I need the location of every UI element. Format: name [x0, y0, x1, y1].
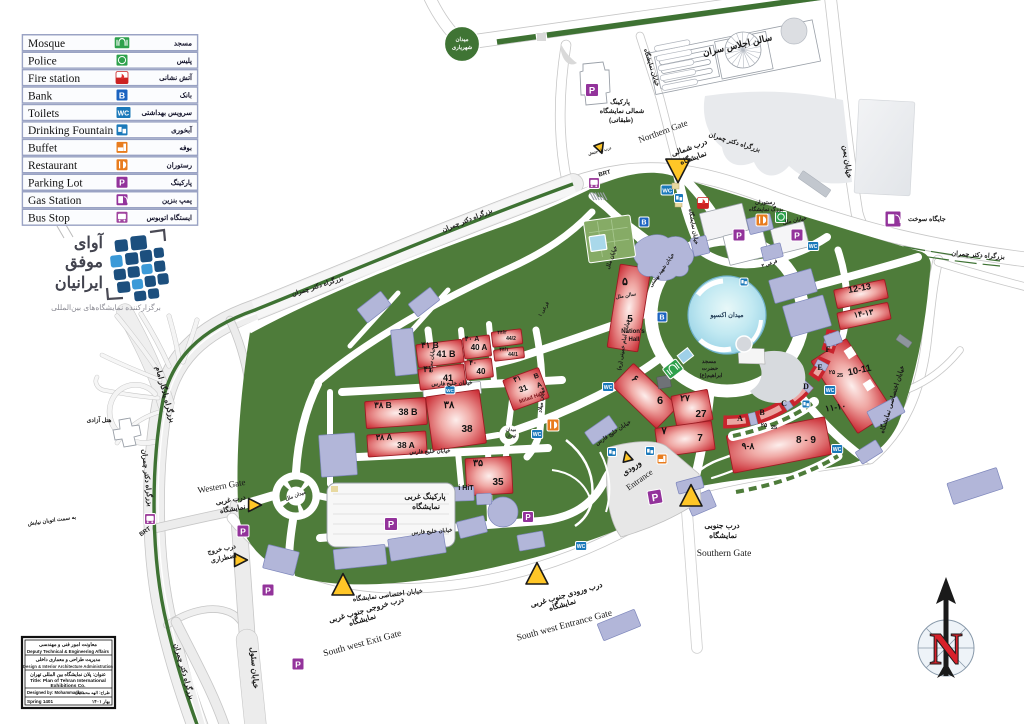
svg-text:WC: WC	[533, 432, 542, 438]
svg-text:سرویس بهداشتی: سرویس بهداشتی	[141, 109, 192, 117]
svg-text:C: C	[781, 399, 787, 408]
svg-text:مسجد: مسجد	[702, 359, 716, 365]
svg-text:P: P	[525, 513, 530, 522]
svg-text:نمایشگاه: نمایشگاه	[709, 530, 737, 540]
svg-text:35: 35	[492, 477, 504, 488]
svg-text:۹-۸: ۹-۸	[742, 441, 755, 451]
svg-text:F: F	[826, 345, 831, 354]
svg-text:P: P	[589, 85, 595, 96]
svg-text:WC: WC	[809, 244, 818, 250]
svg-text:25: 25	[771, 425, 777, 431]
svg-text:بانک: بانک	[180, 92, 192, 100]
svg-text:پارکینگ غربی: پارکینگ غربی	[404, 491, 446, 502]
svg-text:WC: WC	[604, 385, 613, 391]
svg-text:خیابان خلیج فارس: خیابان خلیج فارس	[409, 447, 451, 455]
svg-text:P: P	[388, 519, 394, 530]
svg-text:P: P	[295, 659, 301, 669]
svg-text:۲۷: ۲۷	[680, 393, 690, 403]
svg-text:WC: WC	[833, 447, 842, 453]
svg-text:Bank: Bank	[28, 90, 53, 102]
svg-text:WC: WC	[577, 544, 586, 550]
svg-text:N: N	[929, 623, 962, 674]
svg-text:برگزارکننده نمایشگاه‌های بین‌ا: برگزارکننده نمایشگاه‌های بین‌المللی	[51, 302, 161, 312]
svg-text:۲۵: ۲۵	[761, 423, 768, 429]
svg-text:i HiT: i HiT	[458, 485, 474, 492]
svg-text:Mosque: Mosque	[28, 38, 65, 50]
svg-text:7: 7	[697, 433, 703, 444]
svg-text:WC: WC	[446, 388, 454, 393]
svg-text:27: 27	[695, 409, 707, 420]
svg-text:ابراهیم(ع): ابراهیم(ع)	[700, 372, 723, 379]
svg-text:Hall: Hall	[628, 337, 639, 343]
svg-text:Restaurant: Restaurant	[28, 160, 78, 172]
svg-text:مسجد: مسجد	[174, 40, 192, 47]
svg-text:D: D	[803, 382, 809, 391]
svg-text:38 A: 38 A	[397, 440, 415, 450]
svg-text:Police: Police	[28, 56, 57, 68]
svg-text:38 B: 38 B	[398, 407, 418, 417]
svg-text:آوای: آوای	[74, 231, 105, 253]
svg-text:38: 38	[461, 424, 473, 435]
svg-text:۴۰: ۴۰	[469, 360, 477, 367]
svg-text:پلیس: پلیس	[177, 57, 192, 66]
svg-text:Gas Station: Gas Station	[28, 195, 82, 207]
svg-text:میدان اکسپو: میدان اکسپو	[709, 311, 744, 319]
svg-text:6: 6	[657, 395, 663, 407]
svg-text:Exhibitions Co.: Exhibitions Co.	[51, 683, 86, 689]
svg-text:8 - 9: 8 - 9	[796, 435, 816, 446]
svg-text:Southern Gate: Southern Gate	[697, 549, 752, 559]
svg-text:P: P	[736, 230, 742, 240]
svg-text:(طبقاتی): (طبقاتی)	[609, 116, 633, 124]
svg-text:پارکینگ: پارکینگ	[171, 178, 192, 188]
svg-text:نمایشگاه: نمایشگاه	[412, 501, 440, 511]
svg-text:۳۵: ۳۵	[473, 458, 484, 469]
svg-text:پارکینگ: پارکینگ	[610, 97, 630, 106]
svg-text:موفق: موفق	[65, 254, 103, 272]
svg-text:رستوران: رستوران	[755, 199, 775, 206]
svg-text:Bus Stop: Bus Stop	[28, 213, 70, 225]
svg-text:Fire station: Fire station	[28, 73, 80, 85]
svg-text:Design & Interior Architecture: Design & Interior Architecture Administr…	[23, 664, 113, 669]
svg-text:25: 25	[837, 373, 843, 379]
svg-text:معاونت امور فنی و مهندسی: معاونت امور فنی و مهندسی	[39, 642, 97, 648]
svg-text:شهریاری: شهریاری	[452, 44, 473, 51]
svg-text:Nation's: Nation's	[621, 329, 645, 335]
svg-text:Drinking Fountain: Drinking Fountain	[28, 125, 114, 137]
svg-text:WC: WC	[662, 188, 672, 194]
svg-text:میدان: میدان	[455, 36, 468, 43]
svg-text:WC: WC	[118, 110, 130, 117]
svg-text:Buffet: Buffet	[28, 143, 58, 155]
svg-text:۲۵: ۲۵	[829, 370, 836, 376]
svg-text:مدیریت طراحی و معماری داخلی: مدیریت طراحی و معماری داخلی	[36, 657, 101, 663]
svg-text:۷: ۷	[660, 426, 667, 437]
svg-text:B: B	[659, 313, 664, 322]
svg-text:شمالی نمایشگاه: شمالی نمایشگاه	[600, 106, 645, 115]
svg-text:۴۰ A: ۴۰ A	[465, 336, 480, 343]
svg-text:Deputy Technical & Engineering: Deputy Technical & Engineering Affairs	[27, 649, 110, 654]
svg-text:A: A	[737, 414, 743, 423]
svg-text:P: P	[265, 585, 271, 595]
svg-text:هتل آزادی: هتل آزادی	[87, 416, 112, 424]
svg-text:41 B: 41 B	[436, 349, 456, 359]
svg-text:جایگاه سوخت: جایگاه سوخت	[908, 214, 946, 223]
svg-text:Parking Lot: Parking Lot	[28, 178, 83, 190]
svg-text:Toilets: Toilets	[28, 108, 60, 120]
svg-text:P: P	[794, 230, 800, 240]
svg-text:44/2: 44/2	[506, 336, 516, 342]
svg-text:۵: ۵	[622, 276, 628, 288]
svg-text:Spring 1401: Spring 1401	[27, 699, 53, 704]
svg-text:40 A: 40 A	[471, 343, 488, 352]
svg-text:۴۱: ۴۱	[423, 364, 432, 374]
svg-text:بزرگ نمایشگاه: بزرگ نمایشگاه	[749, 205, 784, 213]
svg-text:درب جنوبی: درب جنوبی	[704, 521, 740, 531]
svg-text:پمپ بنزین: پمپ بنزین	[162, 197, 192, 205]
svg-text:۳۸: ۳۸	[444, 400, 455, 411]
svg-text:رستوران: رستوران	[167, 161, 193, 169]
svg-text:WC: WC	[826, 388, 835, 394]
svg-text:۳۸ B: ۳۸ B	[374, 400, 392, 410]
svg-text:B: B	[641, 218, 646, 227]
svg-text:40: 40	[477, 367, 486, 376]
svg-text:44/1: 44/1	[508, 352, 518, 358]
svg-text:۳۸ A: ۳۸ A	[376, 433, 393, 442]
svg-text:41: 41	[443, 373, 453, 383]
svg-text:حضرت: حضرت	[702, 366, 719, 372]
svg-text:ایرانیان: ایرانیان	[55, 275, 103, 293]
svg-text:B: B	[759, 408, 765, 417]
svg-text:P: P	[119, 178, 125, 188]
svg-text:B: B	[119, 90, 125, 100]
svg-text:P: P	[240, 526, 246, 536]
svg-text:E: E	[817, 363, 822, 372]
svg-text:5: 5	[627, 314, 633, 325]
svg-text:ایستگاه اتوبوس: ایستگاه اتوبوس	[147, 213, 193, 222]
svg-text:بوفه: بوفه	[179, 145, 192, 152]
svg-text:عنوان: پلان نمایشگاه بین الملل: عنوان: پلان نمایشگاه بین المللی تهران	[30, 671, 106, 678]
